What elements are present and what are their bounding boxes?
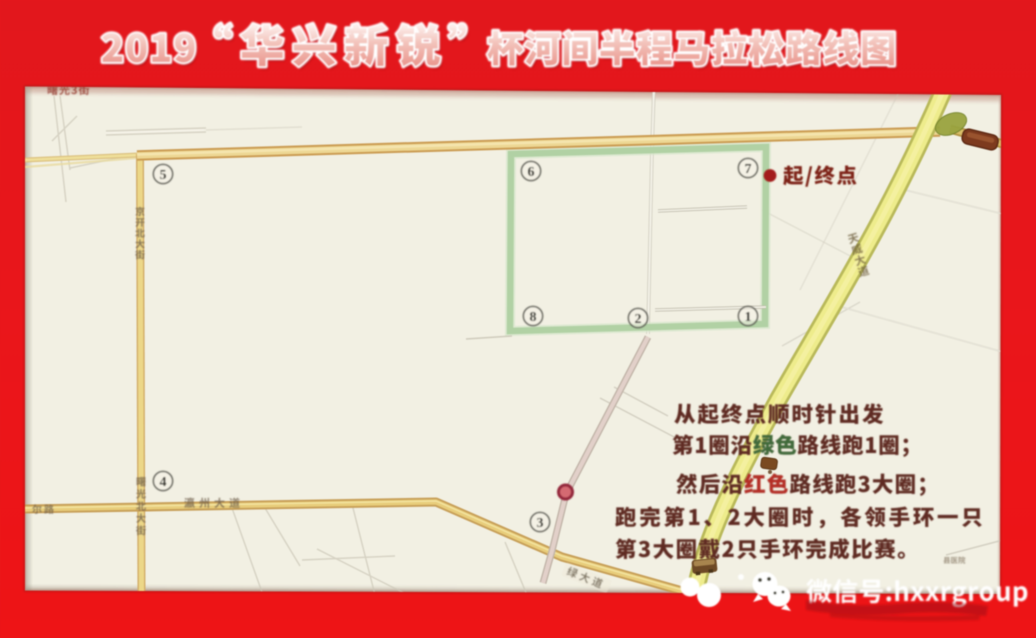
svg-text:2: 2 — [635, 312, 642, 327]
svg-text:6: 6 — [528, 165, 535, 180]
svg-text:7: 7 — [745, 162, 752, 177]
svg-text:8: 8 — [530, 310, 537, 325]
svg-text:3: 3 — [537, 516, 544, 531]
svg-text:5: 5 — [160, 168, 167, 183]
svg-text:1: 1 — [745, 310, 752, 325]
svg-text:4: 4 — [160, 475, 167, 490]
